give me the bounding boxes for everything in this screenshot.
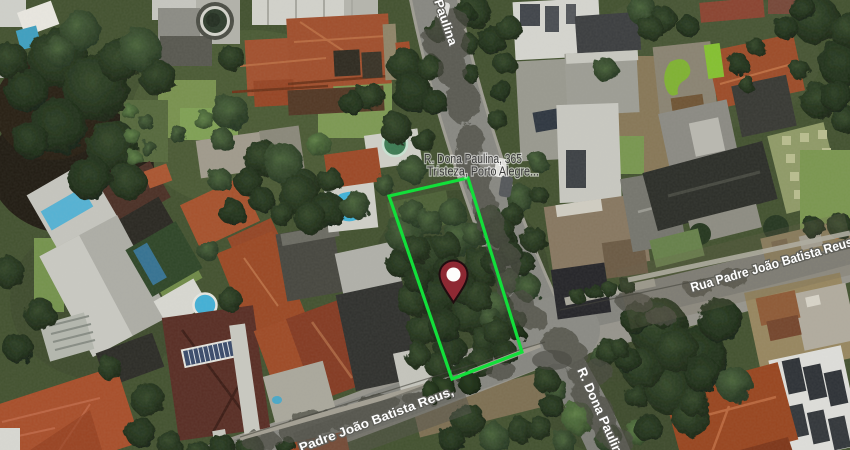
svg-text:Tristeza, Porto Alegre...: Tristeza, Porto Alegre... bbox=[427, 164, 539, 179]
